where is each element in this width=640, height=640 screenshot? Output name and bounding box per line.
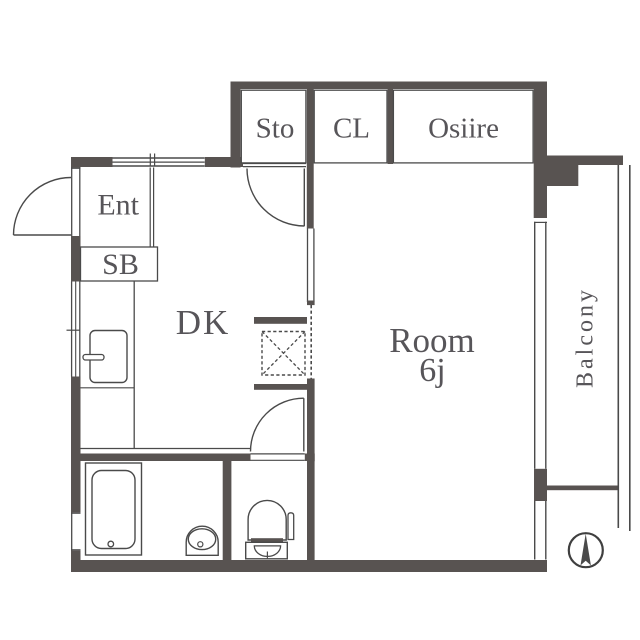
svg-text:Balcony: Balcony [572, 287, 598, 388]
svg-text:Sto: Sto [256, 113, 295, 145]
svg-text:DK: DK [176, 303, 231, 342]
svg-text:Osiire: Osiire [428, 113, 499, 145]
svg-text:SB: SB [102, 248, 139, 281]
svg-text:6j: 6j [419, 352, 445, 389]
svg-text:CL: CL [333, 113, 370, 145]
svg-text:Ent: Ent [97, 189, 139, 222]
